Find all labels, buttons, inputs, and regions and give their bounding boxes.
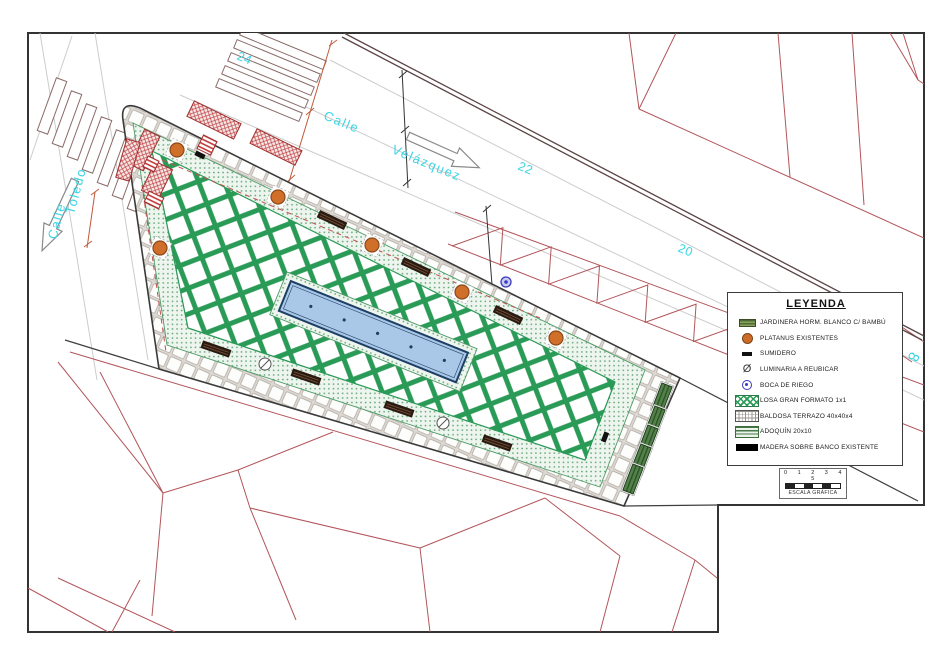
tree-circle-icon — [734, 333, 760, 344]
scale-bar: 0 1 2 3 4 5 ESCALA GRÁFICA — [779, 468, 847, 499]
lattice-swatch-icon — [734, 395, 760, 407]
paver-swatch-icon — [734, 426, 760, 438]
legend-item-losa: LOSA GRAN FORMATO 1x1 — [734, 393, 898, 409]
diameter-glyph-icon: Ø — [734, 364, 760, 375]
legend-title: LEYENDA — [734, 298, 898, 310]
terrazzo-grid-swatch-icon — [734, 410, 760, 422]
solid-black-swatch-icon — [734, 444, 760, 451]
scale-strip — [785, 483, 841, 489]
legend-item-luminaria: Ø LUMINARIA A REUBICAR — [734, 362, 898, 378]
jardinera-swatch-icon — [734, 319, 760, 327]
legend-item-jardinera: JARDINERA HORM. BLANCO C/ BAMBÚ — [734, 315, 898, 331]
hydrant-circle-icon — [734, 380, 760, 390]
legend: LEYENDA JARDINERA HORM. BLANCO C/ BAMBÚ … — [727, 292, 903, 466]
water-hydrant — [501, 277, 511, 287]
plan-drawing: Calle Velázquez Calle Toledo 24 22 20 8 … — [0, 0, 950, 669]
drain-rect-icon — [734, 352, 760, 356]
actuation-limit-lines — [718, 505, 924, 632]
legend-item-platanus: PLATANUS EXISTENTES — [734, 331, 898, 347]
scale-label: ESCALA GRÁFICA — [780, 490, 846, 496]
legend-item-baldosa: BALDOSA TERRAZO 40x40x4 — [734, 409, 898, 425]
legend-item-madera: MADERA SOBRE BANCO EXISTENTE — [734, 440, 898, 456]
legend-item-sumidero: SUMIDERO — [734, 346, 898, 362]
legend-item-adoquin: ADOQUÍN 20x10 — [734, 424, 898, 440]
legend-item-boca-riego: BOCA DE RIEGO — [734, 377, 898, 393]
scale-numbers: 0 1 2 3 4 5 — [784, 471, 846, 482]
